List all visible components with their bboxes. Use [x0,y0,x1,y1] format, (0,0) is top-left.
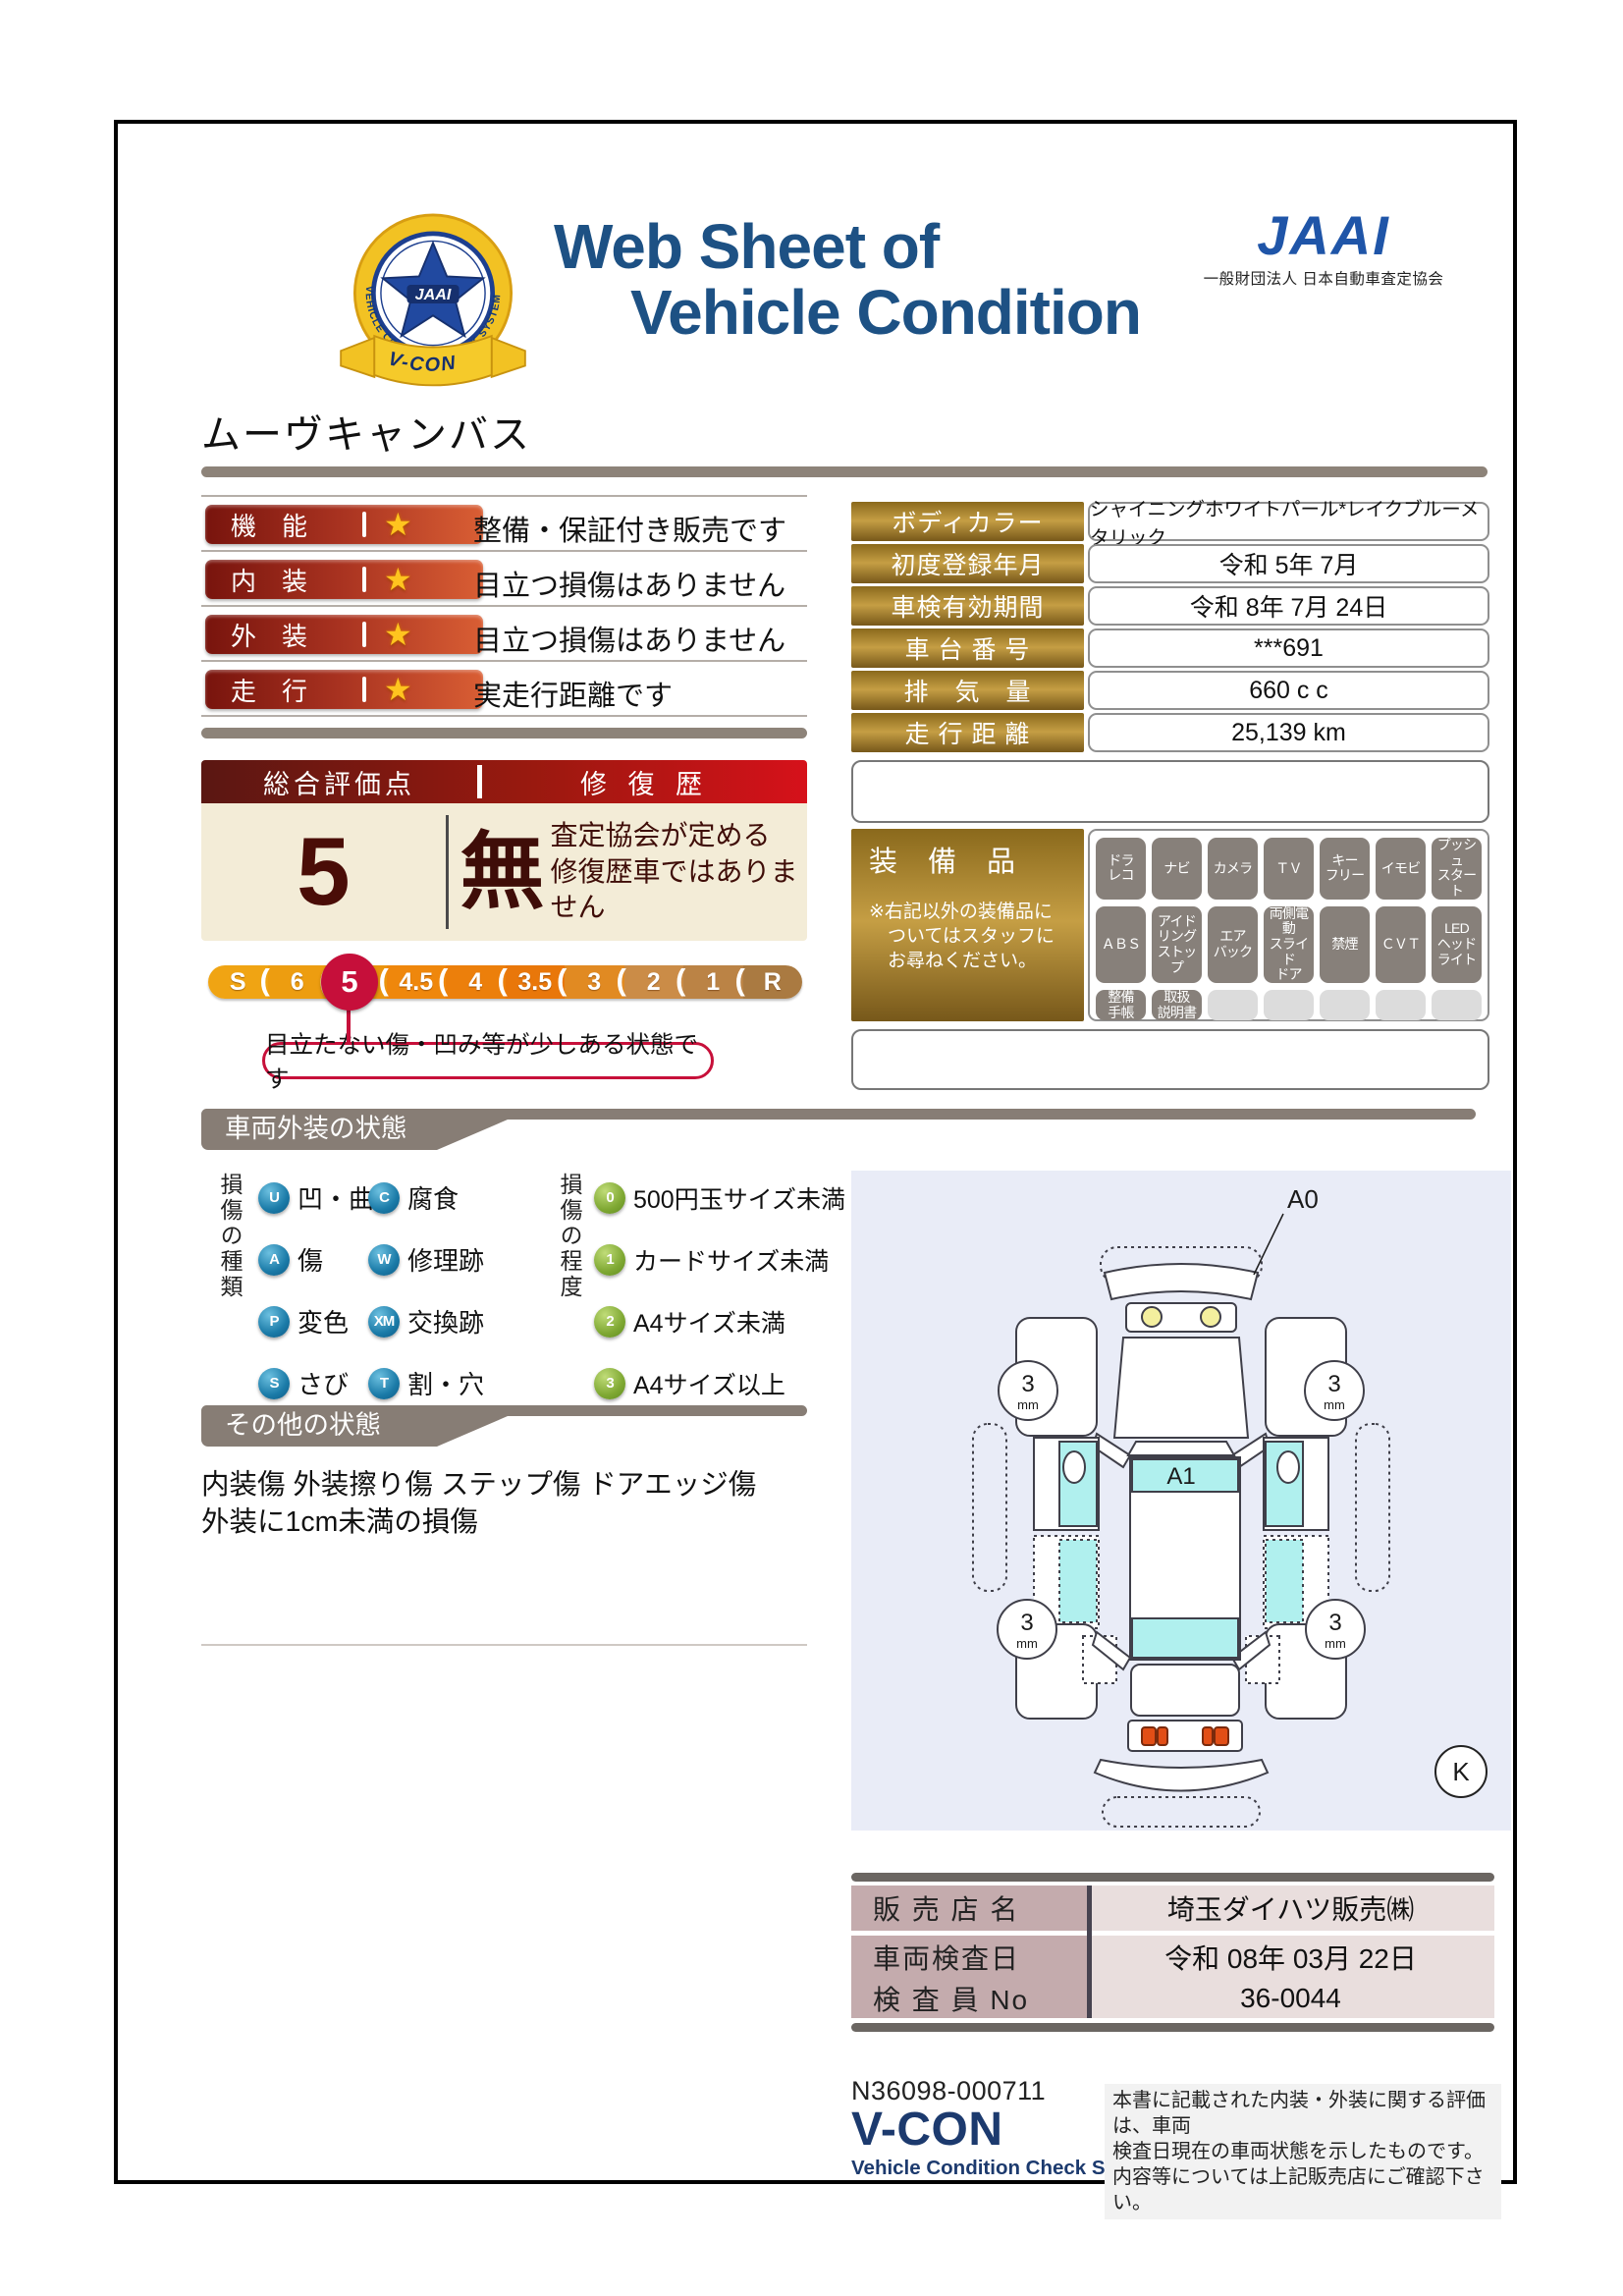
rating-label: 外 装 [231,617,356,653]
damage-type-item: P 変色 [258,1290,368,1352]
dealer-value: 36-0044 [1087,1979,1494,2018]
hood-windshield [1114,1338,1248,1438]
rating-bar: 外 装 ★ [205,615,483,654]
rating-label: 内 装 [231,562,356,598]
damage-type-axis: 損傷の種類 [213,1173,246,1384]
damage-type-label: 腐食 [407,1179,459,1216]
equipment-badge-empty [1320,990,1370,1020]
car-damage-diagram: A0 A1 3 mm 3 mm 3 mm 3 mm K [851,1171,1511,1831]
divider [201,466,1488,477]
table-column-divider [1087,1886,1092,2018]
taillight-left-icon [1142,1727,1156,1745]
exterior-section-header: 車両外装の状態 [201,1109,1476,1150]
table-top-bar [851,1873,1494,1882]
equipment-badge: LED ヘッド ライト [1432,906,1482,983]
repair-history-title: 修 復 歴 [482,763,807,801]
rear-hatch [1131,1665,1239,1716]
divider [201,728,807,738]
headlight-right-icon [1201,1307,1220,1327]
damage-degree-item: 0 500円玉サイズ未満 [594,1167,845,1229]
rating-description: 目立つ損傷はありません [473,618,785,659]
rating-list: 機 能 ★ 整備・保証付き販売です 内 装 ★ 目立つ損傷はありません 外 装 [201,495,807,717]
equipment-badge-grid: ドラ レコ ナビ カメラ ＴＶ キー フリー イモビ プッシュ スタート ＡＢＳ… [1088,829,1489,1021]
svg-text:3: 3 [1327,1371,1340,1397]
rating-bar: 機 能 ★ [205,505,483,544]
rating-bar: 走 行 ★ [205,670,483,709]
info-label: 排 気 量 [851,671,1084,710]
grade-scale-bar: ( S ( 6 ( 5 ( 4.5 ( [208,965,802,999]
damage-degree-badge: 0 [594,1182,625,1214]
equipment-badge: 禁煙 [1320,906,1370,983]
table-bottom-bar [851,2023,1494,2032]
other-condition-text: 内装傷 外装擦り傷 ステップ傷 ドアエッジ傷 外装に1cm未満の損傷 [201,1467,807,1541]
damage-type-label: 凹・曲 [298,1179,374,1216]
damage-degree-item: 2 A4サイズ未満 [594,1290,845,1352]
taillight-right-icon [1203,1727,1213,1745]
dealer-label: 検 査 員 No [851,1979,1087,2018]
repair-note-line2: 修復歴車ではありません [551,854,808,926]
table-row: 走 行 距 離 25,139 km [851,713,1489,752]
info-value: シャイニングホワイトパール*レイクブルーメタリック [1088,502,1489,541]
grade-segment-label: R [764,968,782,997]
star-icon: ★ [384,674,412,705]
damage-type-item: C 腐食 [368,1167,535,1229]
segment-separator: ( [438,965,448,998]
emblem-center-text: JAAI [415,286,452,303]
equipment-badge-empty [1264,990,1314,1020]
cowl [1128,1442,1234,1455]
svg-text:3: 3 [1021,1371,1034,1397]
equipment-title: 装 備 品 [869,839,1084,880]
rating-row: 内 装 ★ 目立つ損傷はありません [201,550,807,605]
vcon-emblem-icon: VEHICLE CONDITION CHECK SYSTEM JAAI V-CO… [326,206,540,399]
rating-row: 機 能 ★ 整備・保証付き販売です [201,495,807,550]
table-row: 車 台 番 号 ***691 [851,629,1489,668]
equipment-badge: エア バック [1208,906,1258,983]
tire-rear-left: 3 mm [998,1600,1056,1659]
vehicle-name: ムーヴキャンバス [201,403,531,460]
equipment-section: 装 備 品 ※右記以外の装備品に ついてはスタッフに お尋ねください。 ドラ レ… [851,829,1489,1021]
segment-separator: ( [498,965,508,998]
overall-header: 総合評価点 修 復 歴 [201,760,807,803]
star-icon: ★ [384,564,412,595]
segment-separator: ( [617,965,626,998]
info-value: 令和 5年 7月 [1088,544,1489,583]
repair-note: 査定協会が定める 修復歴車ではありません [551,818,808,925]
table-row: 販 売 店 名 埼玉ダイハツ販売㈱ [851,1886,1494,1931]
damage-degree-badge: 3 [594,1368,625,1399]
damage-type-label: 変色 [298,1303,349,1339]
damage-type-badge: P [258,1306,290,1338]
segment-separator: ( [676,965,685,998]
tire-front-left: 3 mm [999,1361,1057,1420]
equipment-badge: ＴＶ [1264,838,1314,900]
rating-label: 機 能 [231,507,356,543]
equipment-badge: カメラ [1208,838,1258,900]
grade-callout: 目立たない傷・凹み等が少しある状態です [262,1042,714,1079]
roof-rear-glass [1132,1618,1238,1658]
damage-type-label: 割・穴 [407,1365,484,1401]
info-label: 初度登録年月 [851,544,1084,583]
title-line-1: Web Sheet of [554,214,1141,280]
grade-segment: ( S [208,965,268,999]
rating-divider [362,567,366,592]
equipment-label-cell: 装 備 品 ※右記以外の装備品に ついてはスタッフに お尋ねください。 [851,829,1084,1021]
other-section-title: その他の状態 [201,1405,437,1447]
damage-legend: 損傷の種類 U 凹・曲 C 腐食 A 傷 W [201,1165,830,1414]
taillight-right-icon [1215,1727,1228,1745]
damage-type-label: 傷 [298,1241,323,1278]
headlight-left-icon [1142,1307,1162,1327]
equipment-badge: ナビ [1152,838,1202,900]
table-row: 検 査 員 No 36-0044 [851,1979,1494,2018]
key-mark: K [1435,1746,1487,1797]
repair-history: 無 査定協会が定める 修復歴車ではありません [449,803,808,941]
damage-degree-label: A4サイズ未満 [633,1304,785,1339]
segment-separator: ( [557,965,567,998]
footer-note: 本書に記載された内装・外装に関する評価は、車両 検査日現在の車両状態を示したもの… [1105,2084,1501,2219]
other-condition-line1: 内装傷 外装擦り傷 ステップ傷 ドアエッジ傷 [201,1467,807,1504]
svg-text:3: 3 [1020,1610,1033,1636]
annotation-a0: A0 [1287,1184,1319,1214]
rating-bar: 内 装 ★ [205,560,483,599]
damage-type-badge: XM [368,1306,400,1338]
equipment-badge: ドラ レコ [1096,838,1146,900]
overall-score: 5 [201,803,446,941]
grade-segment-label: 2 [647,968,661,997]
jaai-logo: JAAI [1180,208,1467,263]
info-label: 車 台 番 号 [851,629,1084,668]
overall-score-title: 総合評価点 [201,763,477,801]
damage-type-badge: U [258,1182,290,1214]
equipment-badge: 両側電動 スライド ドア [1264,906,1314,983]
equipment-badge-empty [1208,990,1258,1020]
org-logo-block: JAAI 一般財団法人 日本自動車査定協会 [1180,208,1467,289]
tire-front-right: 3 mm [1305,1361,1364,1420]
grade-segment: ( R [743,965,803,999]
grade-segment-label: S [230,968,246,997]
table-row: 排 気 量 660 c c [851,671,1489,710]
divider [201,1644,807,1646]
grade-segment: ( 4 [446,965,506,999]
damage-degree-badge: 1 [594,1244,625,1276]
dealer-rows: 販 売 店 名 埼玉ダイハツ販売㈱ 車両検査日 令和 08年 03月 22日 検… [851,1886,1494,2018]
org-name: 一般財団法人 日本自動車査定協会 [1180,267,1467,289]
rating-label: 走 行 [231,672,356,708]
info-label: ボディカラー [851,502,1084,541]
damage-degree-label: カードサイズ未満 [633,1242,829,1278]
dealer-label: 車両検査日 [851,1936,1087,1979]
info-value: ***691 [1088,629,1489,668]
grade-segment-label: 4.5 [399,968,433,997]
page-title: Web Sheet of Vehicle Condition [554,214,1141,346]
table-row: 車両検査日 令和 08年 03月 22日 [851,1936,1494,1979]
damage-type-label: 修理跡 [407,1241,484,1278]
svg-text:mm: mm [1325,1636,1346,1651]
info-value: 令和 8年 7月 24日 [1088,586,1489,626]
equipment-note: ※右記以外の装備品に ついてはスタッフに お尋ねください。 [869,900,1084,973]
damage-type-item: W 修理跡 [368,1229,535,1290]
empty-field [851,1029,1489,1090]
damage-type-label: 交換跡 [407,1303,484,1339]
grade-segment: ( 4.5 [387,965,447,999]
damage-degree-axis: 損傷の程度 [553,1173,586,1384]
damage-type-badge: A [258,1244,290,1276]
rating-description: 整備・保証付き販売です [473,508,786,549]
grade-scale: ( S ( 6 ( 5 ( 4.5 ( [201,965,807,1087]
exterior-section-title: 車両外装の状態 [201,1109,437,1150]
tire-rear-right: 3 mm [1306,1600,1365,1659]
equipment-badge: アイド リング ストップ [1152,906,1202,983]
grade-segment: ( 2 [624,965,684,999]
info-value: 660 c c [1088,671,1489,710]
info-label: 車検有効期間 [851,586,1084,626]
damage-degree-label: A4サイズ以上 [633,1366,785,1401]
grade-segment-label: 6 [291,968,304,997]
rating-row: 外 装 ★ 目立つ損傷はありません [201,605,807,660]
damage-type-item: XM 交換跡 [368,1290,535,1352]
equipment-badge-empty [1432,990,1482,1020]
annotation-a1: A1 [1166,1463,1195,1490]
info-value: 25,139 km [1088,713,1489,752]
repair-flag: 無 [460,830,545,914]
star-icon: ★ [384,619,412,650]
title-line-2: Vehicle Condition [630,280,1141,346]
empty-field [851,760,1489,823]
taillight-left-icon [1158,1727,1167,1745]
grade-segment: ( 3 [565,965,624,999]
table-row: 車検有効期間 令和 8年 7月 24日 [851,586,1489,626]
vehicle-condition-sheet: VEHICLE CONDITION CHECK SYSTEM JAAI V-CO… [114,120,1517,2184]
selected-grade-badge: 5 [321,954,378,1011]
rating-divider [362,512,366,537]
equipment-badge: ＡＢＳ [1096,906,1146,983]
damage-type-list: U 凹・曲 C 腐食 A 傷 W 修理跡 [258,1167,535,1414]
rating-divider [362,622,366,647]
other-condition-line2: 外装に1cm未満の損傷 [201,1504,807,1542]
damage-type-badge: S [258,1368,290,1399]
info-label: 走 行 距 離 [851,713,1084,752]
overall-body: 5 無 査定協会が定める 修復歴車ではありません [201,803,807,941]
equipment-badge: 整備 手帳 [1096,990,1146,1020]
star-icon: ★ [384,509,412,540]
svg-text:mm: mm [1017,1397,1039,1412]
dealer-table: 販 売 店 名 埼玉ダイハツ販売㈱ 車両検査日 令和 08年 03月 22日 検… [851,1873,1494,2032]
damage-type-badge: C [368,1182,400,1214]
svg-text:K: K [1452,1757,1470,1786]
rating-description: 実走行距離です [473,673,673,714]
balloon-tail [347,1009,351,1044]
overall-evaluation: 総合評価点 修 復 歴 5 無 査定協会が定める 修復歴車ではありません [201,760,807,941]
table-row: 初度登録年月 令和 5年 7月 [851,544,1489,583]
segment-separator: ( [260,965,270,998]
svg-text:mm: mm [1324,1397,1345,1412]
grade-segment-label: 4 [468,968,482,997]
rating-row: 走 行 ★ 実走行距離です [201,660,807,715]
dealer-value: 埼玉ダイハツ販売㈱ [1087,1886,1494,1931]
svg-text:3: 3 [1328,1610,1341,1636]
damage-degree-list: 0 500円玉サイズ未満 1 カードサイズ未満 2 A4サイズ未満 3 A4サイ… [594,1167,845,1414]
rating-divider [362,677,366,702]
damage-type-item: U 凹・曲 [258,1167,368,1229]
grade-segment: ( 3.5 [506,965,566,999]
damage-degree-badge: 2 [594,1306,625,1338]
rating-description: 目立つ損傷はありません [473,563,785,604]
grade-segment-label: 3.5 [517,968,552,997]
segment-separator: ( [379,965,389,998]
damage-type-label: さび [298,1365,349,1401]
dealer-value: 令和 08年 03月 22日 [1087,1936,1494,1979]
equipment-badge: キー フリー [1320,838,1370,900]
damage-degree-item: 1 カードサイズ未満 [594,1229,845,1290]
svg-text:mm: mm [1016,1636,1038,1651]
grade-segment-label: 1 [706,968,720,997]
repair-note-line1: 査定協会が定める [551,818,808,853]
vehicle-info-table: ボディカラー シャイニングホワイトパール*レイクブルーメタリック 初度登録年月 … [851,502,1489,755]
damage-degree-label: 500円玉サイズ未満 [633,1180,845,1216]
damage-type-item: A 傷 [258,1229,368,1290]
grade-segment-label: 3 [587,968,601,997]
damage-type-badge: T [368,1368,400,1399]
equipment-badge: ＣＶＴ [1376,906,1426,983]
equipment-badge-empty [1376,990,1426,1020]
other-section-header: その他の状態 [201,1405,807,1447]
equipment-badge: プッシュ スタート [1432,838,1482,900]
segment-separator: ( [735,965,745,998]
damage-type-badge: W [368,1244,400,1276]
grade-segment: ( 6 [268,965,328,999]
equipment-badge: 取扱 説明書 [1152,990,1202,1020]
equipment-badge: イモビ [1376,838,1426,900]
grade-segment: ( 1 [683,965,743,999]
table-row: ボディカラー シャイニングホワイトパール*レイクブルーメタリック [851,502,1489,541]
dealer-label: 販 売 店 名 [851,1886,1087,1931]
